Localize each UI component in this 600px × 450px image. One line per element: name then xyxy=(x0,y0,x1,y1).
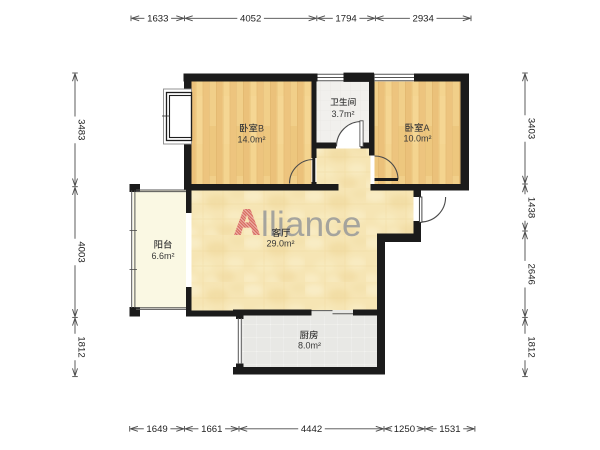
svg-text:8.0m²: 8.0m² xyxy=(298,340,321,350)
svg-text:6.6m²: 6.6m² xyxy=(151,251,174,261)
svg-text:4052: 4052 xyxy=(240,14,261,25)
svg-text:1812: 1812 xyxy=(75,336,86,357)
svg-text:2646: 2646 xyxy=(525,264,536,285)
svg-text:1531: 1531 xyxy=(439,424,460,435)
svg-text:3.7m²: 3.7m² xyxy=(331,109,354,119)
svg-text:A: A xyxy=(423,123,429,133)
svg-text:1250: 1250 xyxy=(394,424,415,435)
svg-text:1633: 1633 xyxy=(147,14,168,25)
svg-text:1649: 1649 xyxy=(146,424,167,435)
svg-text:2934: 2934 xyxy=(413,14,435,25)
svg-text:14.0m²: 14.0m² xyxy=(237,135,265,145)
svg-text:29.0m²: 29.0m² xyxy=(266,239,294,249)
svg-text:1661: 1661 xyxy=(201,424,222,435)
svg-text:1438: 1438 xyxy=(525,197,536,218)
svg-text:4003: 4003 xyxy=(75,241,86,262)
svg-text:1794: 1794 xyxy=(335,14,357,25)
svg-text:1812: 1812 xyxy=(525,336,536,357)
svg-text:3483: 3483 xyxy=(75,119,86,140)
svg-text:B: B xyxy=(258,124,264,134)
svg-text:10.0m²: 10.0m² xyxy=(403,134,431,144)
svg-text:3403: 3403 xyxy=(525,118,536,139)
svg-text:4442: 4442 xyxy=(301,424,322,435)
